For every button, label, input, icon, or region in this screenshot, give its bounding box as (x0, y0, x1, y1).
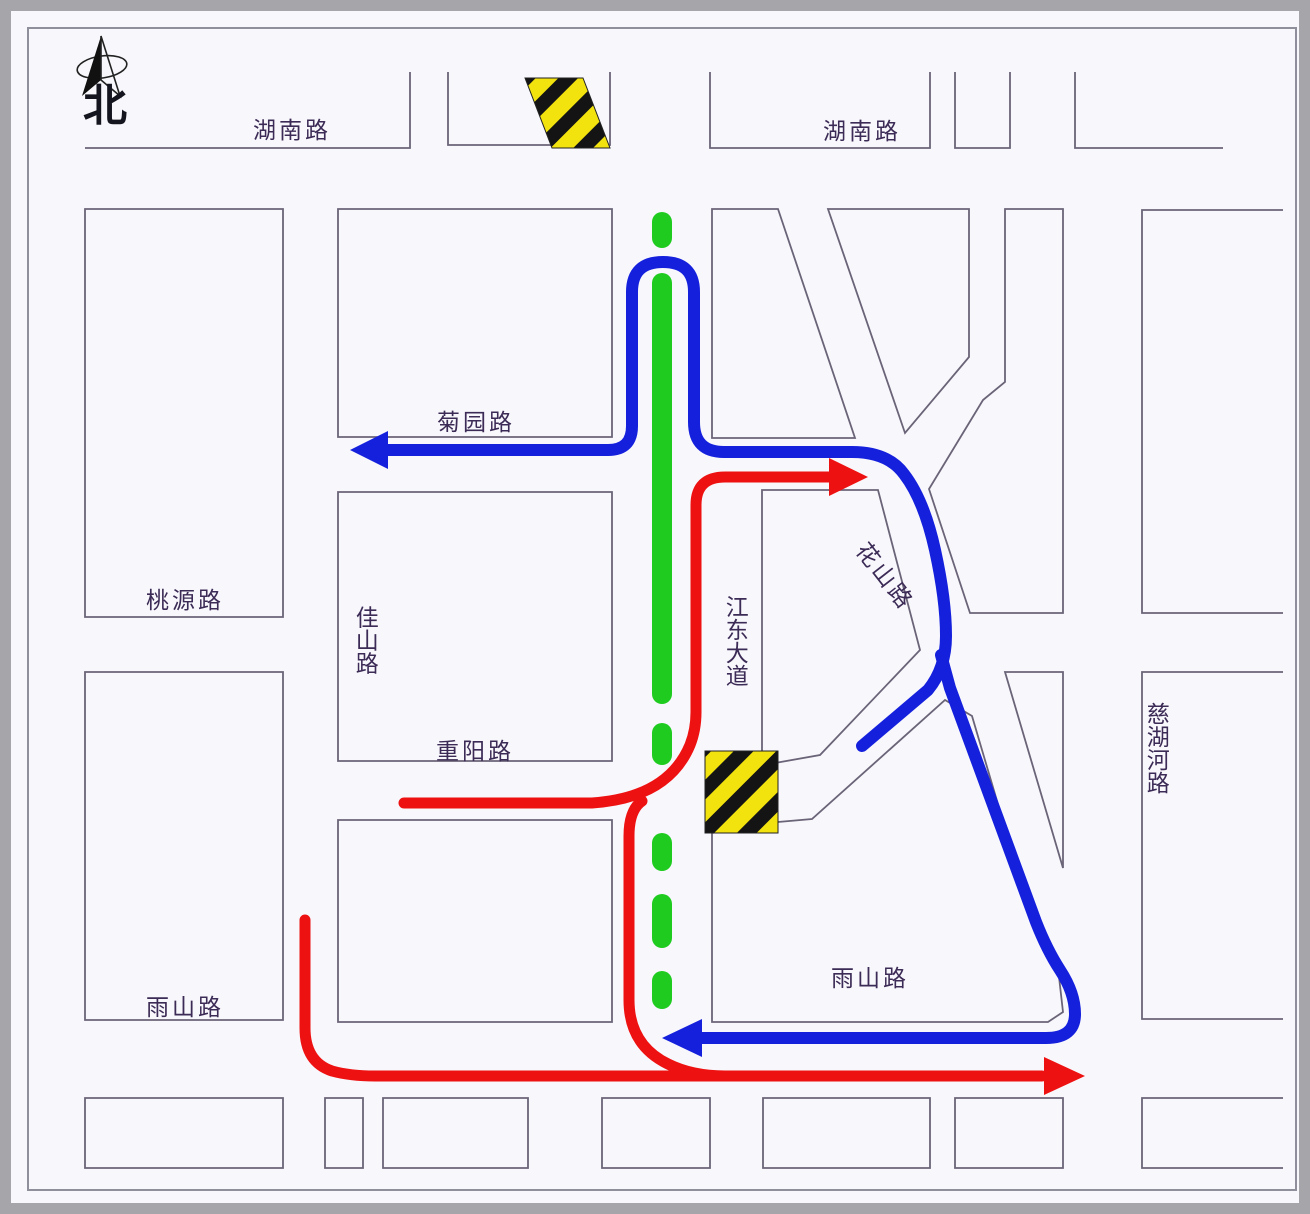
block-outline (1075, 72, 1223, 148)
red-arrowhead-southeast-icon (1044, 1057, 1085, 1095)
block-outline (1142, 210, 1283, 613)
block-outline (712, 209, 855, 438)
road-label-jiangdong-avenue: 江东大道 (721, 595, 747, 687)
block-outline (1005, 672, 1063, 868)
hazard-stripe-marker-junction-icon (705, 751, 778, 833)
road-label-cihuhe: 慈湖河路 (1142, 702, 1168, 794)
road-label-yushan-east: 雨山路 (831, 966, 909, 992)
block-outline (955, 72, 1010, 148)
red-route-south-path (305, 920, 1042, 1076)
block-outline (85, 1098, 283, 1168)
blue-arrowhead-southwest-icon (662, 1019, 702, 1057)
block-outline (929, 209, 1063, 613)
block-outline (828, 209, 969, 433)
block-outline (338, 209, 612, 437)
block-outline (955, 1098, 1063, 1168)
block-outline (602, 1098, 710, 1168)
block-outline (85, 72, 410, 148)
block-outline (763, 1098, 930, 1168)
road-label-hunan-west: 湖南路 (253, 118, 331, 144)
block-outline (325, 1098, 363, 1168)
road-label-taoyuan: 桃源路 (146, 588, 224, 614)
north-label: 北 (83, 82, 127, 133)
compass-ellipse (76, 53, 129, 82)
city-block-outlines (85, 72, 1283, 1168)
block-outline (85, 209, 283, 617)
block-outline (85, 672, 283, 1020)
road-label-jiashan: 佳山路 (351, 606, 377, 675)
block-outline (383, 1098, 528, 1168)
hazard-stripe-marker-north-icon (525, 78, 610, 148)
block-outline (338, 492, 612, 761)
road-label-yushan-west: 雨山路 (146, 995, 224, 1021)
block-outline (338, 820, 612, 1022)
road-label-chongyang: 重阳路 (436, 739, 514, 765)
detour-map: 湖南路 湖南路 菊园路 桃源路 佳山路 江东大道 花山路 重阳路 慈湖河路 雨山… (0, 0, 1310, 1214)
road-label-juyuan: 菊园路 (437, 410, 515, 436)
block-outline (1142, 1098, 1283, 1168)
red-detour-route (305, 458, 1085, 1095)
road-label-hunan-east: 湖南路 (823, 119, 901, 145)
